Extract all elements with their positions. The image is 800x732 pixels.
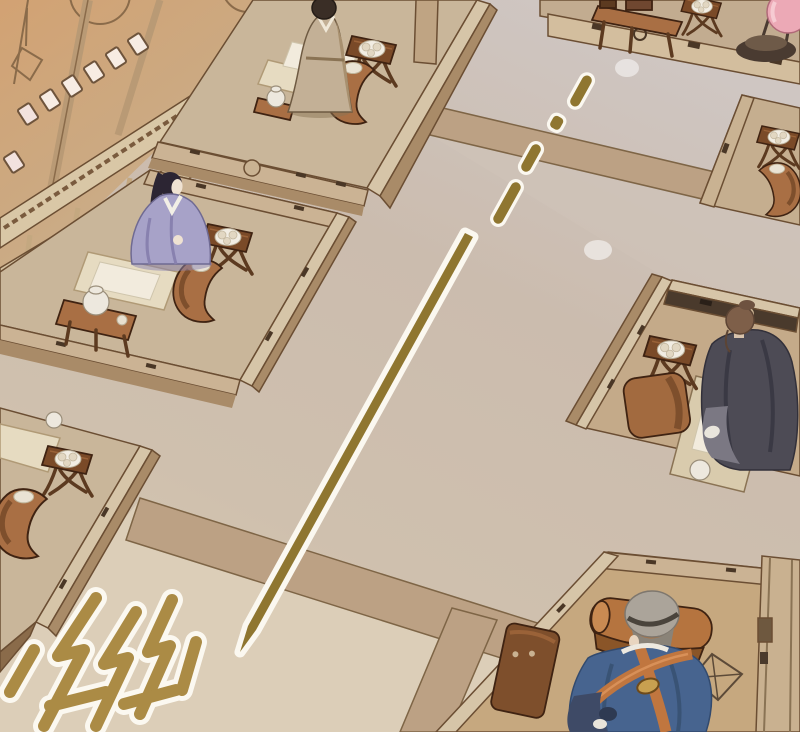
hair-topknot	[739, 300, 755, 310]
floor-glow	[584, 240, 612, 260]
hand	[173, 235, 183, 245]
pillar-bracket	[758, 618, 772, 642]
hair	[726, 306, 754, 334]
hair-gray	[625, 591, 679, 637]
trim-knob	[244, 160, 260, 176]
teapot	[46, 412, 62, 428]
hair	[312, 0, 336, 19]
hall-pillar	[414, 0, 438, 64]
teapot	[690, 460, 710, 480]
hand-wrap	[593, 719, 607, 729]
right-pillar	[756, 556, 800, 732]
comic-panel	[0, 0, 800, 732]
bench-box	[622, 371, 692, 439]
prism-string	[26, 8, 27, 46]
floor-glow	[615, 59, 639, 77]
